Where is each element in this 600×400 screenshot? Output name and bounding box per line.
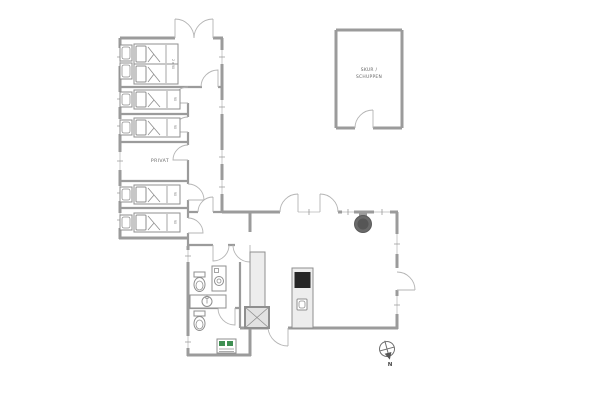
single-bed: 90 [134,213,180,232]
nightstand [120,45,132,61]
side-door [397,272,415,290]
living-room [222,194,415,346]
double-bed: 2 x 90 [134,44,178,84]
bedroom-wing: 2 x 90 90 90 [117,19,225,246]
shed-label-line2: SCHUPPEN [356,74,382,80]
washbasin-icon [190,295,226,308]
shed-label-line1: SKUR / [361,67,378,73]
washing-machine-icon [212,266,226,291]
single-bed: 90 [134,90,180,109]
kitchen-sink-icon [297,299,307,310]
single-bed-size-label: 90 [173,192,177,196]
single-bed-size-label: 90 [173,220,177,224]
wood-stove-icon [355,212,372,233]
shed-door [355,110,373,128]
floor-plan-drawing: 2 x 90 90 90 [0,0,600,400]
double-bed-size-label: 2 x 90 [171,59,175,69]
single-bed: 90 [134,185,180,204]
compass-icon: N [378,339,398,368]
toilet-icon [194,311,205,331]
back-door [268,328,288,346]
bathroom-block [185,245,251,356]
toilet-icon [194,272,205,292]
bedroom-2: 90 [120,90,180,109]
bedroom-1-double: 2 x 90 [120,44,178,84]
nightstand [120,187,132,202]
appliance-icon [217,339,236,353]
nightstand [120,63,132,79]
bedroom-3: 90 [120,118,180,137]
nightstand [120,215,132,230]
compass-north-label: N [388,362,393,368]
privat-room: PRIVAT [151,158,169,164]
single-bed: 90 [134,118,180,137]
single-bed-size-label: 90 [173,97,177,101]
bathroom-2 [194,311,236,353]
kitchen-unit [292,268,313,328]
floor-plan: 2 x 90 90 90 [0,0,600,400]
bedroom-4: 90 [120,185,180,204]
shed-room: SKUR / SCHUPPEN [336,30,402,128]
tall-cabinet [250,252,265,307]
nightstand [120,92,132,107]
shower-cabin-icon [245,307,269,328]
privat-room-label: PRIVAT [151,158,169,164]
entry-double-door [175,19,213,38]
single-bed-size-label: 90 [173,125,177,129]
nightstand [120,120,132,135]
bathroom-1 [190,266,226,308]
bedroom-5: 90 [120,213,180,232]
stove-icon [295,272,311,288]
